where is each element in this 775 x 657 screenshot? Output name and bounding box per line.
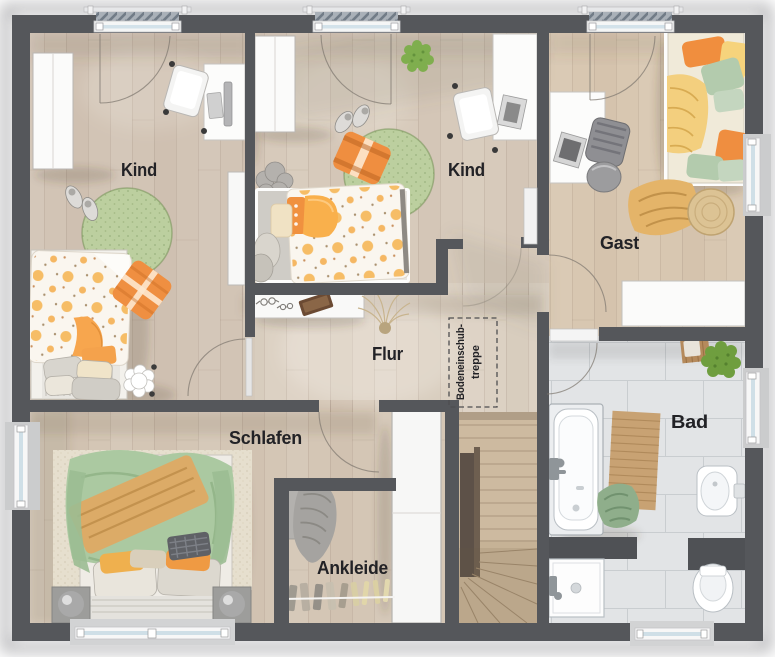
svg-text:Kind: Kind bbox=[448, 159, 485, 180]
svg-text:Kind: Kind bbox=[121, 159, 157, 180]
svg-text:Flur: Flur bbox=[372, 343, 403, 364]
svg-text:Bad: Bad bbox=[671, 411, 708, 432]
svg-text:Gast: Gast bbox=[600, 232, 639, 253]
svg-text:treppe: treppe bbox=[470, 345, 482, 379]
svg-text:Ankleide: Ankleide bbox=[317, 557, 388, 578]
svg-text:Schlafen: Schlafen bbox=[229, 427, 302, 448]
svg-text:Bodeneinschub-: Bodeneinschub- bbox=[455, 324, 467, 400]
